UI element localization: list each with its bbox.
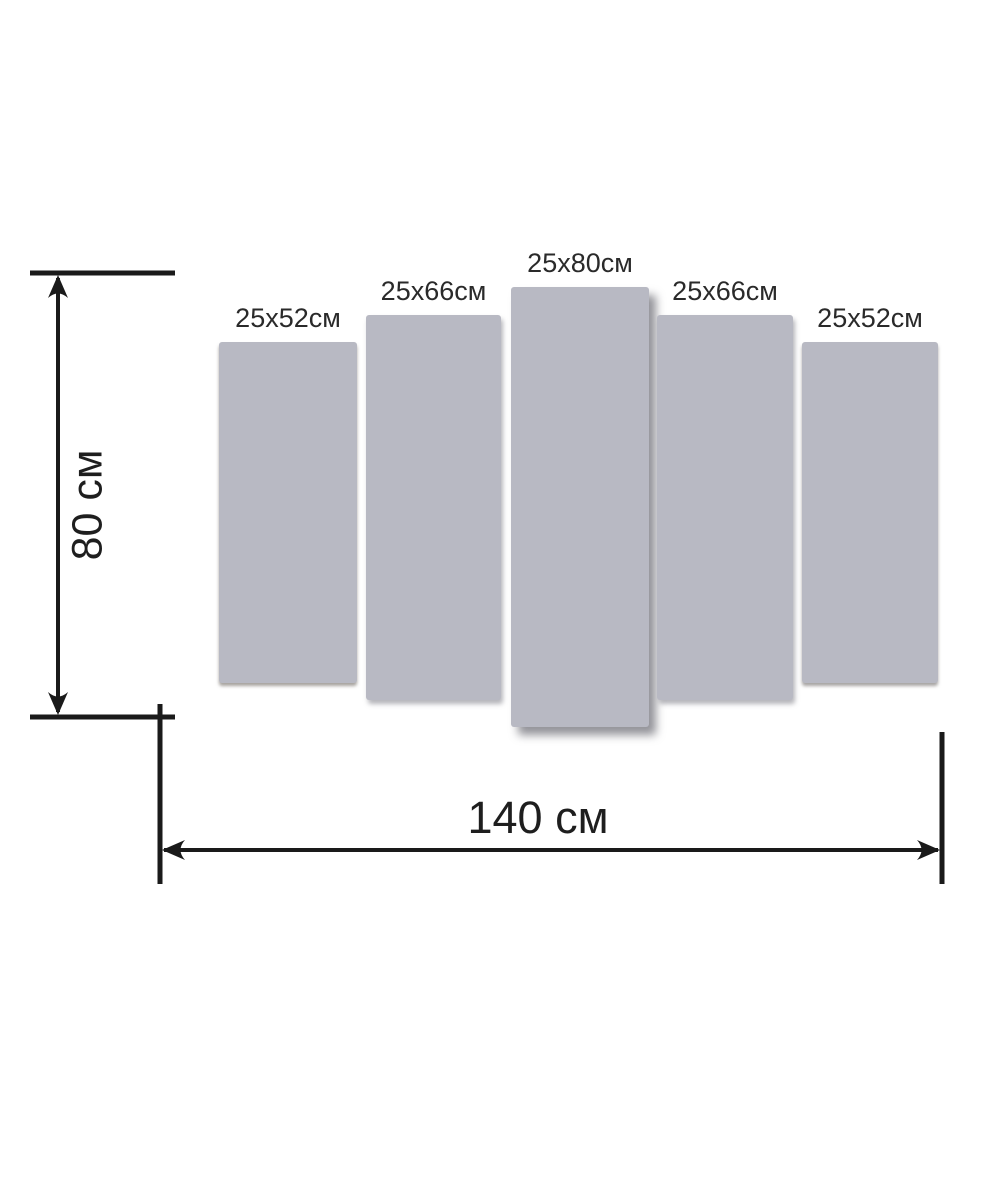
panel-3: 25x80см <box>511 287 649 727</box>
arrow-up-icon <box>48 275 68 298</box>
panel-5-size-label: 25x52см <box>817 302 923 334</box>
arrow-right-icon <box>917 840 940 860</box>
panel-2: 25x66см <box>366 315 501 700</box>
modular-canvas-size-diagram: 80 см 140 см 25x52см 25x66см 25x80см 25x… <box>0 0 1000 1200</box>
panel-4: 25x66см <box>657 315 793 700</box>
panel-4-size-label: 25x66см <box>672 275 778 307</box>
panel-1: 25x52см <box>219 342 357 683</box>
panel-1-size-label: 25x52см <box>235 302 341 334</box>
width-dimension-label: 140 см <box>467 792 608 844</box>
arrow-left-icon <box>162 840 185 860</box>
panel-3-size-label: 25x80см <box>527 247 633 279</box>
arrow-down-icon <box>48 692 68 715</box>
panel-2-size-label: 25x66см <box>381 275 487 307</box>
height-dimension-label: 80 см <box>64 450 113 561</box>
panel-5: 25x52см <box>802 342 938 683</box>
